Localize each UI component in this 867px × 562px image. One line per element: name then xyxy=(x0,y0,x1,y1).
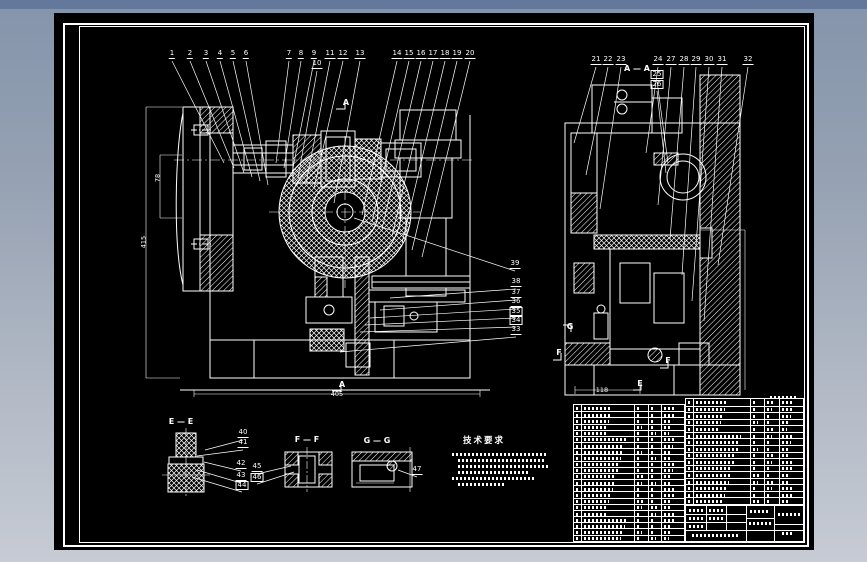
bom-cell xyxy=(780,407,803,413)
bom-cell xyxy=(662,499,684,504)
bom-cell xyxy=(751,485,765,491)
bom-cell xyxy=(780,466,803,472)
bom-row xyxy=(686,465,803,472)
bom-cell xyxy=(635,499,649,504)
bom-cell xyxy=(686,446,694,452)
callout-7: 7 xyxy=(286,50,292,59)
bom-cell xyxy=(635,505,649,510)
bom-cell xyxy=(751,426,765,432)
bom-cell xyxy=(649,480,663,485)
callout-24: 24 xyxy=(653,56,664,65)
detail-f-f xyxy=(285,447,332,492)
section-label-4: F — F xyxy=(295,436,320,443)
bom-cell xyxy=(574,474,582,479)
callout-33: 33 xyxy=(511,326,522,335)
bom-cell xyxy=(662,437,684,442)
bom-row xyxy=(686,445,803,452)
bom-row xyxy=(686,438,803,445)
bom-cell xyxy=(635,455,649,460)
bom-cell xyxy=(574,499,582,504)
bom-cell xyxy=(780,472,803,478)
bom-cell xyxy=(662,523,684,528)
callout-6: 6 xyxy=(243,50,249,59)
bom-cell xyxy=(686,459,694,465)
section-label-6: G xyxy=(567,323,574,330)
bom-cell xyxy=(649,505,663,510)
bom-cell xyxy=(574,511,582,516)
bom-cell xyxy=(694,485,751,491)
bom-cell xyxy=(765,492,781,498)
bom-cell xyxy=(780,426,803,432)
bom-row xyxy=(686,458,803,465)
bom-cell xyxy=(780,498,803,504)
bom-cell xyxy=(649,431,663,436)
bom-cell xyxy=(780,485,803,491)
callout-37: 37 xyxy=(511,289,522,298)
bom-row xyxy=(574,516,684,522)
bom-cell xyxy=(582,449,635,454)
side-section-view xyxy=(553,75,745,395)
bom-row xyxy=(574,473,684,479)
section-label-1: A xyxy=(339,381,345,388)
callout-35: 35 xyxy=(510,307,523,316)
callout-36: 36 xyxy=(511,298,522,307)
bom-cell xyxy=(582,523,635,528)
callout-13: 13 xyxy=(355,50,366,59)
bom-cell xyxy=(780,459,803,465)
bom-cell xyxy=(635,449,649,454)
bom-row xyxy=(574,454,684,460)
bom-row xyxy=(574,467,684,473)
bom-cell xyxy=(635,492,649,497)
bom-cell xyxy=(649,468,663,473)
bom-cell xyxy=(662,455,684,460)
bom-cell xyxy=(649,529,663,534)
bom-row xyxy=(686,432,803,439)
bom-cell xyxy=(780,479,803,485)
callout-43: 43 xyxy=(236,472,247,481)
bom-cell xyxy=(582,499,635,504)
tech-requirements-line-6 xyxy=(458,483,504,486)
bom-cell xyxy=(574,455,582,460)
callout-21: 21 xyxy=(591,56,602,65)
bom-cell xyxy=(751,459,765,465)
bom-cell xyxy=(686,407,694,413)
section-label-8: F xyxy=(665,357,670,364)
bom-cell xyxy=(686,399,694,406)
bom-cell xyxy=(582,425,635,430)
bom-cell xyxy=(662,536,684,541)
bom-cell xyxy=(635,529,649,534)
section-label-2: A — A xyxy=(624,65,650,72)
bom-cell xyxy=(582,405,635,411)
tech-requirements-line-1 xyxy=(452,453,548,456)
bom-row xyxy=(574,436,684,442)
bom-cell xyxy=(662,492,684,497)
bom-cell xyxy=(694,459,751,465)
callout-18: 18 xyxy=(440,50,451,59)
callout-10: 10 xyxy=(312,60,323,69)
bom-cell xyxy=(780,492,803,498)
callout-22: 22 xyxy=(603,56,614,65)
bom-cell xyxy=(574,480,582,485)
bom-cell xyxy=(662,474,684,479)
bom-cell xyxy=(694,498,751,504)
bom-row xyxy=(686,406,803,413)
callout-25: 25 xyxy=(651,70,664,79)
bom-row xyxy=(574,424,684,430)
bom-cell xyxy=(662,425,684,430)
bom-cell xyxy=(765,485,781,491)
bom-cell xyxy=(751,479,765,485)
bom-cell xyxy=(662,412,684,417)
section-label-0: A xyxy=(343,99,349,106)
bom-row xyxy=(574,504,684,510)
callout-41: 41 xyxy=(238,439,249,448)
bom-cell xyxy=(574,425,582,430)
bom-cell xyxy=(765,439,781,445)
bom-cell xyxy=(694,472,751,478)
bom-cell xyxy=(574,418,582,423)
bom-row xyxy=(574,485,684,491)
bom-cell xyxy=(751,466,765,472)
cad-viewer-window: 1234567891011121314151617181920212223242… xyxy=(0,0,867,562)
bom-cell xyxy=(649,499,663,504)
callout-30: 30 xyxy=(704,56,715,65)
bom-cell xyxy=(635,468,649,473)
callout-31: 31 xyxy=(717,56,728,65)
bom-cell xyxy=(765,433,781,439)
bom-cell xyxy=(662,511,684,516)
callout-20: 20 xyxy=(465,50,476,59)
callout-26: 26 xyxy=(651,80,664,89)
bom-cell xyxy=(582,418,635,423)
callout-27: 27 xyxy=(666,56,677,65)
bom-cell xyxy=(635,511,649,516)
bom-cell xyxy=(765,399,781,406)
callout-39: 39 xyxy=(510,260,521,269)
bom-cell xyxy=(574,405,582,411)
bom-cell xyxy=(649,474,663,479)
bom-row xyxy=(686,412,803,419)
bom-row xyxy=(574,417,684,423)
bom-cell xyxy=(686,472,694,478)
bom-cell xyxy=(635,462,649,467)
dimension-415: 415 xyxy=(141,236,148,248)
callout-44: 44 xyxy=(236,481,249,490)
callout-45: 45 xyxy=(252,463,263,472)
bom-cell xyxy=(574,523,582,528)
main-view xyxy=(146,102,490,397)
bom-cell xyxy=(574,412,582,417)
bom-cell xyxy=(694,413,751,419)
bom-cell xyxy=(751,446,765,452)
bom-cell xyxy=(649,462,663,467)
callout-11: 11 xyxy=(325,50,336,59)
bom-cell xyxy=(635,425,649,430)
bom-row xyxy=(574,479,684,485)
bom-cell xyxy=(582,443,635,448)
bom-cell xyxy=(582,431,635,436)
bom-cell xyxy=(635,412,649,417)
detail-e-e xyxy=(162,428,210,498)
bom-row xyxy=(686,497,803,504)
bom-cell xyxy=(662,517,684,522)
bom-cell xyxy=(635,474,649,479)
bom-row xyxy=(574,535,684,541)
bom-cell xyxy=(574,437,582,442)
bom-cell xyxy=(635,405,649,411)
bom-cell xyxy=(649,437,663,442)
bom-cell xyxy=(582,412,635,417)
bom-cell xyxy=(574,431,582,436)
bom-cell xyxy=(765,446,781,452)
bom-cell xyxy=(635,523,649,528)
callout-19: 19 xyxy=(452,50,463,59)
bom-cell xyxy=(765,479,781,485)
bom-cell xyxy=(582,474,635,479)
bom-row xyxy=(686,478,803,485)
bom-cell xyxy=(649,511,663,516)
bom-cell xyxy=(649,443,663,448)
callout-47: 47 xyxy=(412,466,423,475)
bom-cell xyxy=(686,433,694,439)
bom-cell xyxy=(751,407,765,413)
bom-cell xyxy=(751,420,765,426)
bom-cell xyxy=(780,446,803,452)
bom-cell xyxy=(662,529,684,534)
bom-cell xyxy=(765,426,781,432)
bom-cell xyxy=(574,492,582,497)
bom-cell xyxy=(780,433,803,439)
bom-cell xyxy=(686,420,694,426)
bom-cell xyxy=(765,420,781,426)
bom-row xyxy=(686,484,803,491)
bom-cell xyxy=(765,453,781,459)
bom-cell xyxy=(780,413,803,419)
callout-5: 5 xyxy=(230,50,236,59)
bom-cell xyxy=(635,418,649,423)
dimension-405: 405 xyxy=(331,391,343,398)
bom-cell xyxy=(649,412,663,417)
bom-cell xyxy=(694,399,751,406)
bom-cell xyxy=(649,418,663,423)
bom-cell xyxy=(751,492,765,498)
bom-cell xyxy=(686,413,694,419)
bom-cell xyxy=(662,480,684,485)
bom-cell xyxy=(635,480,649,485)
bom-cell xyxy=(635,443,649,448)
bom-cell xyxy=(751,453,765,459)
bom-row xyxy=(686,452,803,459)
bom-cell xyxy=(686,426,694,432)
bom-cell xyxy=(662,405,684,411)
bom-cell xyxy=(662,462,684,467)
callout-9: 9 xyxy=(311,50,317,59)
bom-cell xyxy=(780,439,803,445)
tech-requirements-line-2 xyxy=(458,459,546,462)
bom-cell xyxy=(751,439,765,445)
bom-row xyxy=(574,442,684,448)
bom-row xyxy=(574,405,684,411)
bom-row xyxy=(574,430,684,436)
bom-cell xyxy=(694,439,751,445)
bom-row xyxy=(686,471,803,478)
bom-cell xyxy=(686,453,694,459)
bom-cell xyxy=(694,420,751,426)
callout-12: 12 xyxy=(338,50,349,59)
bom-cell xyxy=(582,529,635,534)
bom-cell xyxy=(649,517,663,522)
bom-cell xyxy=(574,449,582,454)
window-top-strip xyxy=(0,0,867,9)
tech-requirements-title: 技术要求 xyxy=(463,438,505,445)
callout-28: 28 xyxy=(679,56,690,65)
bom-cell xyxy=(765,459,781,465)
bom-cell xyxy=(574,505,582,510)
bom-cell xyxy=(751,433,765,439)
bom-cell xyxy=(780,453,803,459)
bom-cell xyxy=(662,431,684,436)
callout-2: 2 xyxy=(187,50,193,59)
bom-cell xyxy=(574,529,582,534)
bom-cell xyxy=(686,485,694,491)
bom-cell xyxy=(635,437,649,442)
bom-cell xyxy=(582,480,635,485)
bom-cell xyxy=(686,498,694,504)
callout-16: 16 xyxy=(416,50,427,59)
bom-cell xyxy=(649,449,663,454)
bom-cell xyxy=(649,455,663,460)
bom-cell xyxy=(765,466,781,472)
bom-cell xyxy=(574,468,582,473)
bom-row xyxy=(574,448,684,454)
bom-cell xyxy=(694,433,751,439)
bom-cell xyxy=(694,479,751,485)
callout-14: 14 xyxy=(392,50,403,59)
drawing-canvas[interactable]: 1234567891011121314151617181920212223242… xyxy=(54,13,814,550)
callout-29: 29 xyxy=(691,56,702,65)
bom-cell xyxy=(582,486,635,491)
tech-requirements-line-3 xyxy=(458,465,550,468)
bom-cell xyxy=(574,517,582,522)
bom-row xyxy=(574,411,684,417)
bom-cell xyxy=(780,399,803,406)
callout-32: 32 xyxy=(743,56,754,65)
parts-list-table-left xyxy=(573,404,685,542)
bom-cell xyxy=(694,407,751,413)
bom-cell xyxy=(574,462,582,467)
bom-cell xyxy=(582,468,635,473)
bom-cell xyxy=(751,399,765,406)
callout-4: 4 xyxy=(217,50,223,59)
callout-40: 40 xyxy=(238,429,249,438)
bom-cell xyxy=(582,511,635,516)
callout-1: 1 xyxy=(169,50,175,59)
bom-cell xyxy=(649,486,663,491)
bom-cell xyxy=(662,449,684,454)
bom-row xyxy=(574,491,684,497)
bom-cell xyxy=(582,505,635,510)
bom-cell xyxy=(635,536,649,541)
tech-requirements-line-5 xyxy=(452,477,536,480)
title-block xyxy=(685,505,804,542)
bom-cell xyxy=(662,418,684,423)
bom-row xyxy=(574,522,684,528)
callout-3: 3 xyxy=(203,50,209,59)
section-label-5: G — G xyxy=(364,437,391,444)
bom-cell xyxy=(574,536,582,541)
bom-cell xyxy=(649,492,663,497)
callout-8: 8 xyxy=(298,50,304,59)
bom-row xyxy=(686,491,803,498)
bom-cell xyxy=(694,453,751,459)
tech-requirements-line-4 xyxy=(458,471,528,474)
bom-cell xyxy=(662,505,684,510)
bom-cell xyxy=(765,498,781,504)
bom-cell xyxy=(649,536,663,541)
bom-cell xyxy=(686,479,694,485)
bom-cell xyxy=(751,472,765,478)
callout-15: 15 xyxy=(404,50,415,59)
bom-cell xyxy=(686,492,694,498)
bom-cell xyxy=(780,420,803,426)
bom-cell xyxy=(582,455,635,460)
bom-row xyxy=(574,528,684,534)
bom-cell xyxy=(751,413,765,419)
callout-17: 17 xyxy=(428,50,439,59)
bom-cell xyxy=(765,472,781,478)
bom-cell xyxy=(574,443,582,448)
callout-38: 38 xyxy=(511,278,522,287)
bom-cell xyxy=(582,517,635,522)
dimension-78: 78 xyxy=(155,174,162,182)
bom-cell xyxy=(649,523,663,528)
bom-row xyxy=(574,510,684,516)
bom-cell xyxy=(694,466,751,472)
bom-cell xyxy=(765,407,781,413)
bom-row xyxy=(574,498,684,504)
bom-cell xyxy=(694,446,751,452)
section-label-7: F xyxy=(556,349,561,356)
bom-cell xyxy=(582,536,635,541)
bom-cell xyxy=(662,486,684,491)
bom-cell xyxy=(686,439,694,445)
bom-row xyxy=(686,425,803,432)
bom-cell xyxy=(694,492,751,498)
bom-row xyxy=(574,461,684,467)
callout-42: 42 xyxy=(236,460,247,469)
bom-row xyxy=(686,419,803,426)
bom-row xyxy=(686,399,803,406)
bom-cell xyxy=(582,437,635,442)
bom-cell xyxy=(686,466,694,472)
bom-cell xyxy=(662,468,684,473)
section-label-3: E — E xyxy=(169,418,194,425)
dimension-118: 118 xyxy=(596,387,608,394)
bom-cell xyxy=(662,443,684,448)
callout-34: 34 xyxy=(510,316,523,325)
bom-cell xyxy=(635,517,649,522)
bom-cell xyxy=(649,405,663,411)
parts-list-table-right xyxy=(685,398,804,505)
bom-cell xyxy=(582,462,635,467)
detail-g-g xyxy=(352,447,412,492)
bom-cell xyxy=(751,498,765,504)
bom-cell xyxy=(574,486,582,491)
section-label-9: E xyxy=(637,380,642,387)
bom-cell xyxy=(765,413,781,419)
